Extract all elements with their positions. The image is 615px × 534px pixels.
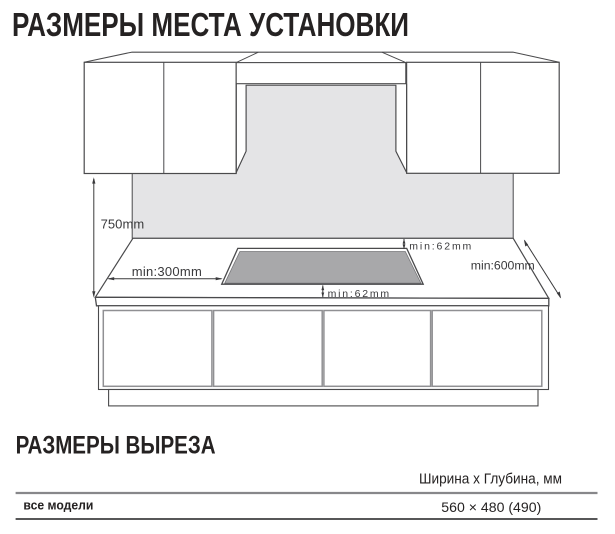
- svg-text:РАЗМЕРЫ МЕСТА УСТАНОВКИ: РАЗМЕРЫ МЕСТА УСТАНОВКИ: [12, 6, 409, 43]
- svg-text:РАЗМЕРЫ ВЫРЕЗА: РАЗМЕРЫ ВЫРЕЗА: [16, 431, 216, 459]
- svg-text:все модели: все модели: [23, 498, 93, 513]
- svg-text:Ширина х Глубина, мм: Ширина х Глубина, мм: [419, 472, 562, 488]
- svg-text:750mm: 750mm: [101, 217, 145, 232]
- svg-text:min:300mm: min:300mm: [132, 264, 202, 279]
- svg-text:560 × 480 (490): 560 × 480 (490): [441, 499, 541, 515]
- svg-text:min:600mm: min:600mm: [471, 259, 535, 273]
